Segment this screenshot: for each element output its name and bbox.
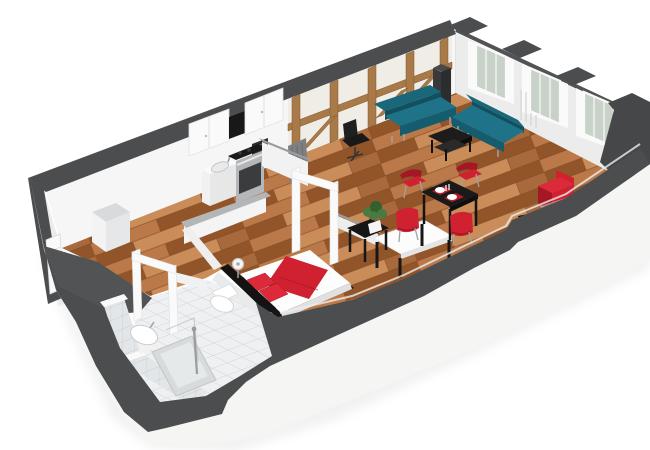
timber-post — [368, 65, 376, 128]
plant-leaves — [377, 209, 387, 219]
burner — [238, 151, 242, 155]
sink-cabinet-face — [202, 170, 210, 206]
plate — [447, 194, 457, 200]
shower-head — [192, 327, 197, 332]
plate — [435, 187, 445, 193]
cabinet-handle — [261, 111, 263, 113]
floor-plan-canvas — [0, 0, 650, 450]
timber-post — [330, 80, 338, 143]
apartment-3d-floor-plan — [0, 0, 650, 450]
burner — [247, 148, 251, 152]
cabinet-handle — [205, 135, 207, 137]
plant-leaves — [370, 212, 379, 221]
